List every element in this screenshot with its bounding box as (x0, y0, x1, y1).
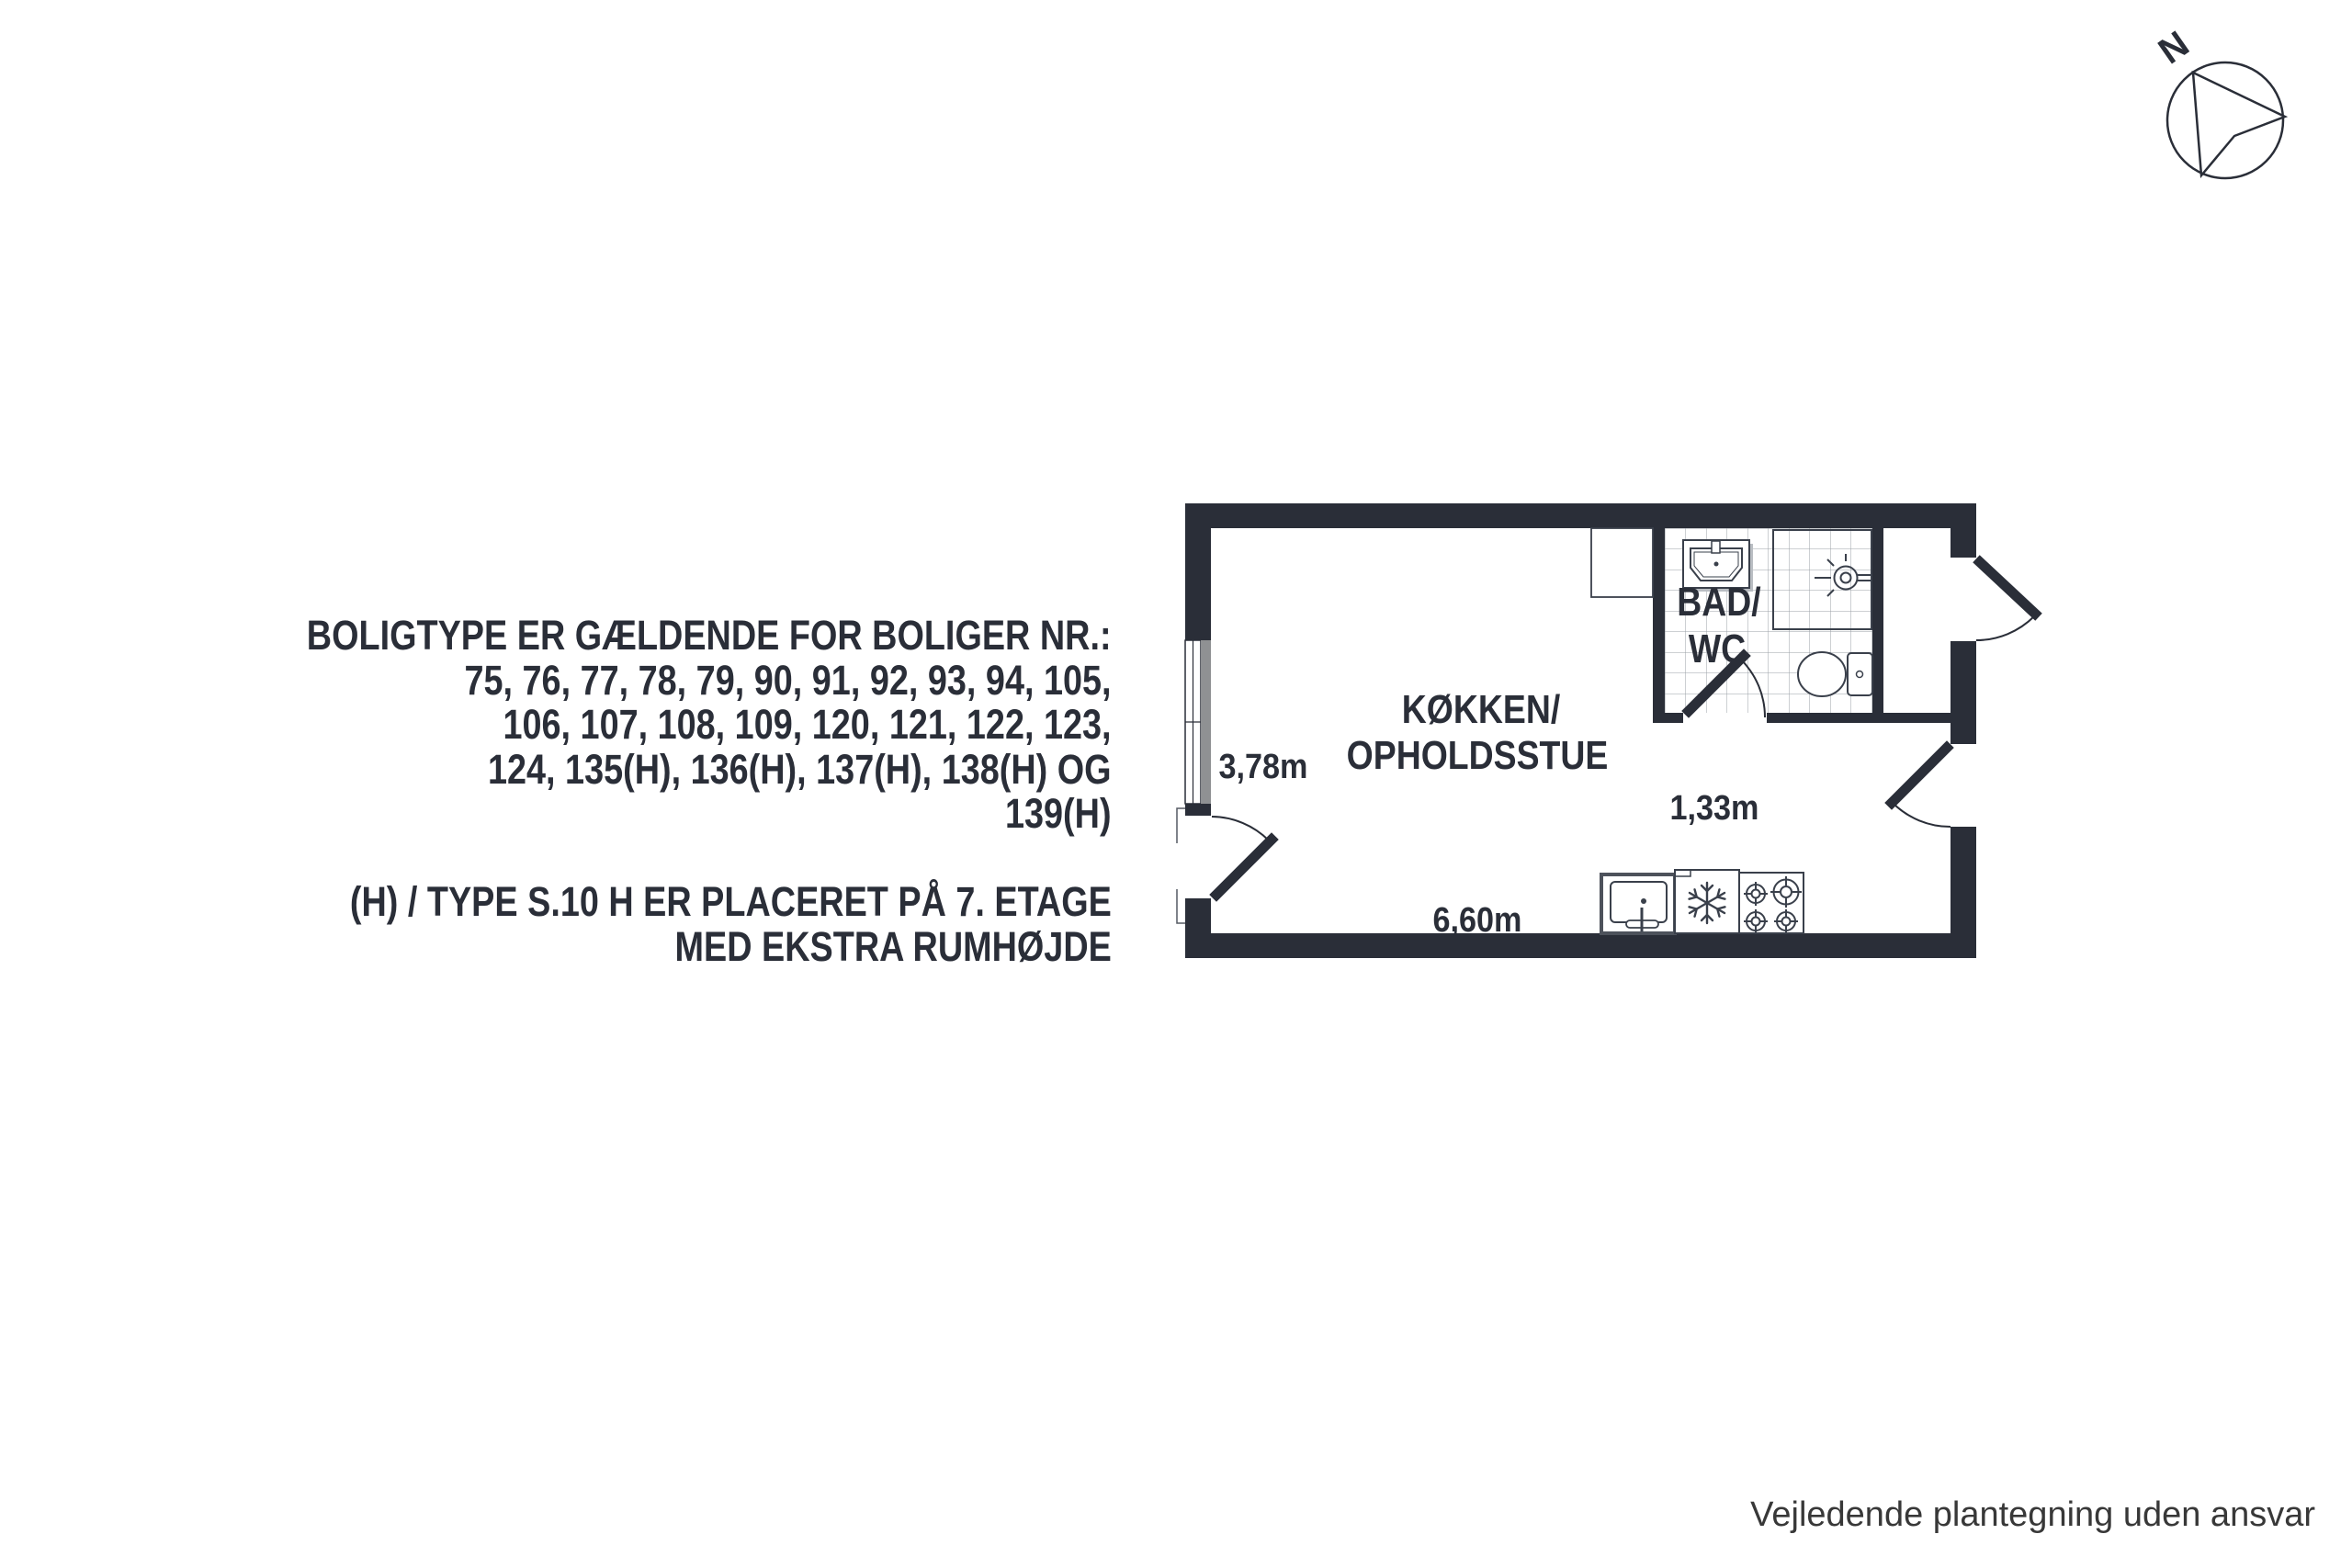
disclaimer-text: Vejledende plantegning uden ansvar (1750, 1495, 2315, 1535)
door-swing-arcs (1212, 616, 2034, 840)
info-line: BOLIGTYPE ER GÆLDENDE FOR BOLIGER NR.: (307, 614, 1112, 659)
info-line: 124, 135(H), 136(H), 137(H), 138(H) OG (307, 748, 1112, 793)
top-right-door-leaf (1980, 562, 2035, 614)
dimension-bath: 1,33m (1670, 787, 1759, 827)
info-line: 106, 107, 108, 109, 120, 121, 122, 123, (307, 703, 1112, 748)
toilet-icon (1798, 652, 1872, 696)
floor-plan-drawing: BAD/ WC (1167, 487, 2095, 1020)
entry-door-leaf (1216, 840, 1272, 895)
right-door-swing (1893, 803, 1951, 827)
top-right-door-swing (1976, 616, 2034, 640)
dimension-left: 3,78m (1219, 746, 1308, 785)
note-line: MED EKSTRA RUMHØJDE (350, 925, 1112, 970)
window (1185, 640, 1211, 804)
room-label: KØKKEN/ OPHOLDSSTUE (1347, 686, 1609, 778)
north-arrow-icon (2193, 73, 2285, 175)
door-threshold-outline (1177, 808, 1185, 923)
stove-icon (1739, 873, 1804, 933)
floor-plan-page: BOLIGTYPE ER GÆLDENDE FOR BOLIGER NR.: 7… (0, 0, 2352, 1568)
wardrobe (1591, 528, 1653, 597)
dimension-bottom: 6,60m (1433, 899, 1522, 939)
kitchen-sink-icon (1601, 874, 1675, 933)
svg-text:BAD/: BAD/ (1677, 579, 1760, 625)
door-leaves (1216, 562, 2035, 895)
info-line: 75, 76, 77, 78, 79, 90, 91, 92, 93, 94, … (307, 659, 1112, 704)
svg-text:OPHOLDSSTUE: OPHOLDSSTUE (1347, 732, 1609, 778)
floor-note-text: (H) / TYPE S.10 H ER PLACERET PÅ 7. ETAG… (350, 880, 1112, 969)
right-door-leaf (1892, 748, 1947, 803)
entry-door-swing (1212, 817, 1269, 840)
apartment-numbers-text: BOLIGTYPE ER GÆLDENDE FOR BOLIGER NR.: 7… (307, 614, 1112, 837)
fridge-icon (1675, 870, 1739, 933)
svg-text:KØKKEN/: KØKKEN/ (1402, 686, 1560, 732)
info-line: 139(H) (307, 792, 1112, 837)
note-line: (H) / TYPE S.10 H ER PLACERET PÅ 7. ETAG… (350, 880, 1112, 925)
